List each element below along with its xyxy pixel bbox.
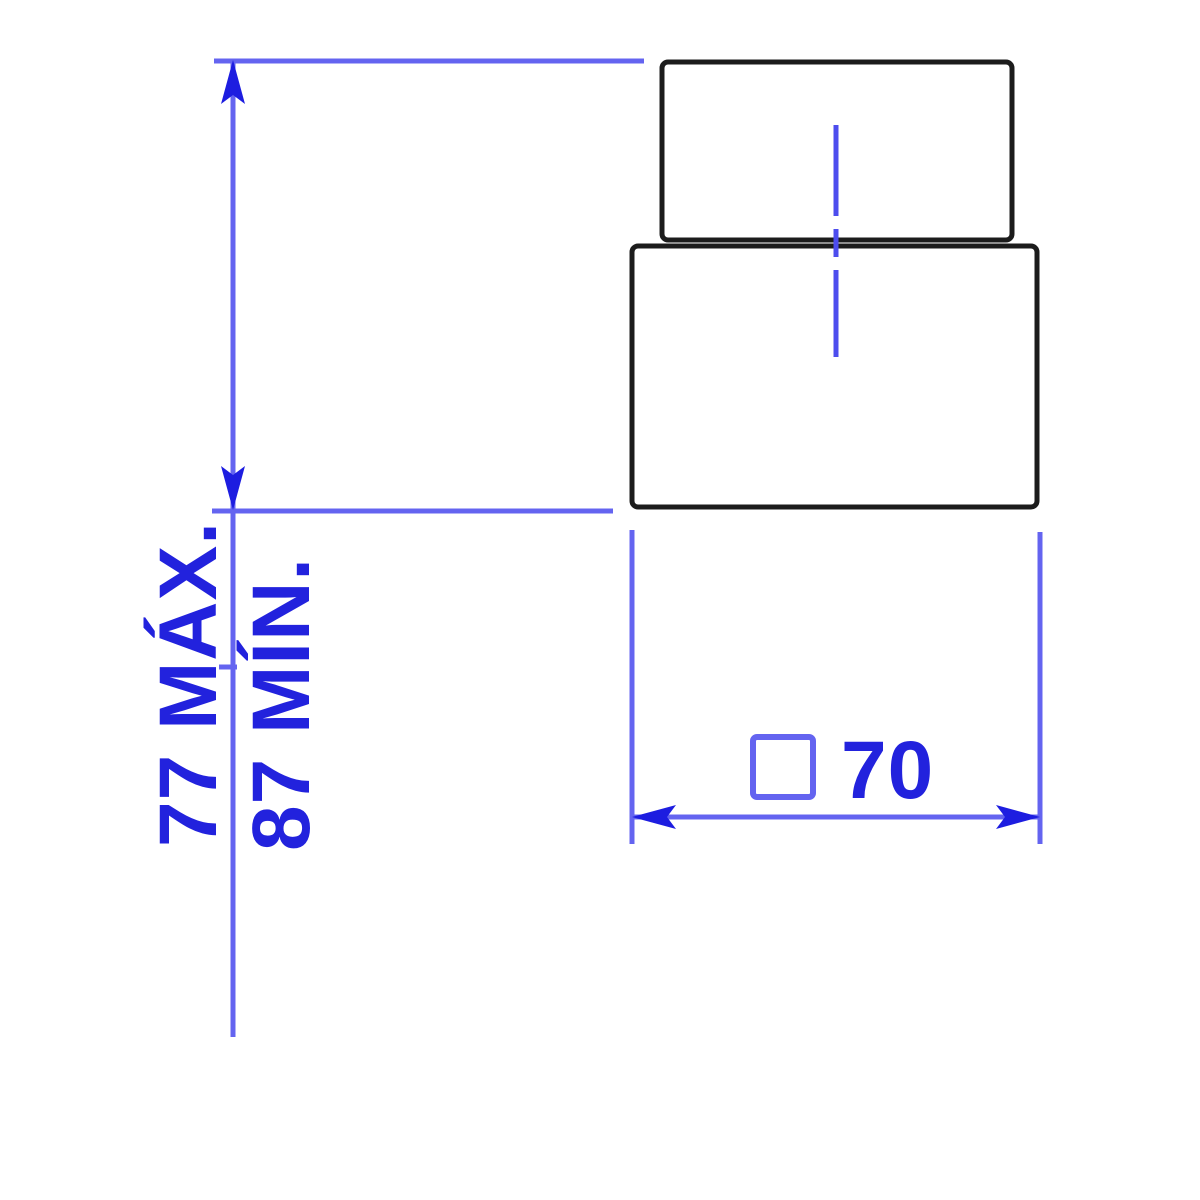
height-dimension-label-max: 77 MÁX. (143, 521, 234, 847)
square-section-symbol-icon (753, 737, 813, 797)
drawing-page: 77 MÁX. 87 MÍN. 70 (0, 0, 1200, 1200)
width-dimension-value: 70 (841, 725, 934, 816)
height-dimension-label-min: 87 MÍN. (236, 557, 327, 851)
drawing-canvas: 77 MÁX. 87 MÍN. 70 (0, 0, 1200, 1200)
